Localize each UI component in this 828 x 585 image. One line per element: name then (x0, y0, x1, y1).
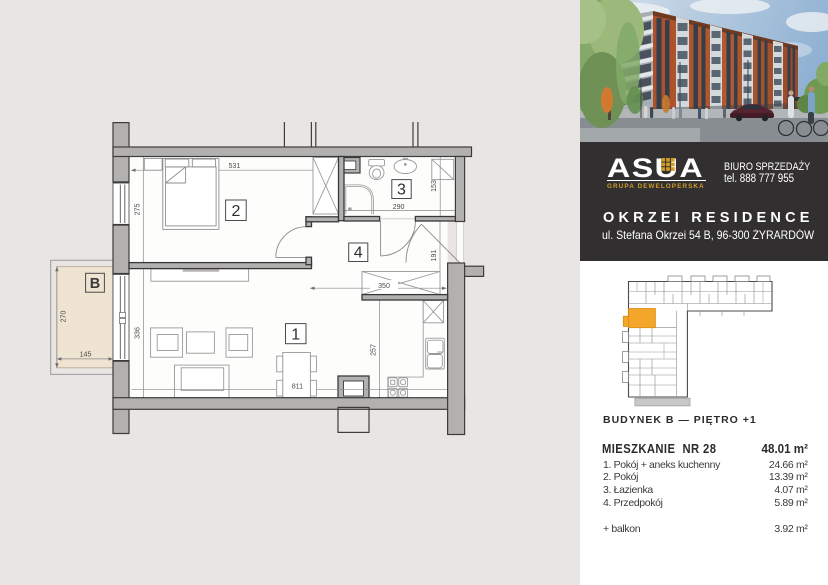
svg-text:2: 2 (231, 203, 240, 220)
svg-text:275: 275 (133, 204, 141, 216)
svg-text:336: 336 (134, 327, 142, 339)
svg-text:145: 145 (80, 351, 92, 359)
svg-text:270: 270 (60, 311, 68, 323)
svg-text:153: 153 (430, 180, 438, 192)
svg-text:B: B (90, 276, 100, 292)
svg-text:3: 3 (397, 181, 406, 198)
svg-text:191: 191 (430, 250, 438, 262)
svg-text:290: 290 (393, 203, 405, 211)
svg-text:350: 350 (378, 282, 390, 290)
svg-text:811: 811 (292, 383, 303, 391)
svg-text:1: 1 (291, 327, 300, 344)
svg-text:4: 4 (354, 244, 363, 261)
svg-text:531: 531 (228, 162, 240, 170)
svg-text:257: 257 (370, 344, 378, 356)
